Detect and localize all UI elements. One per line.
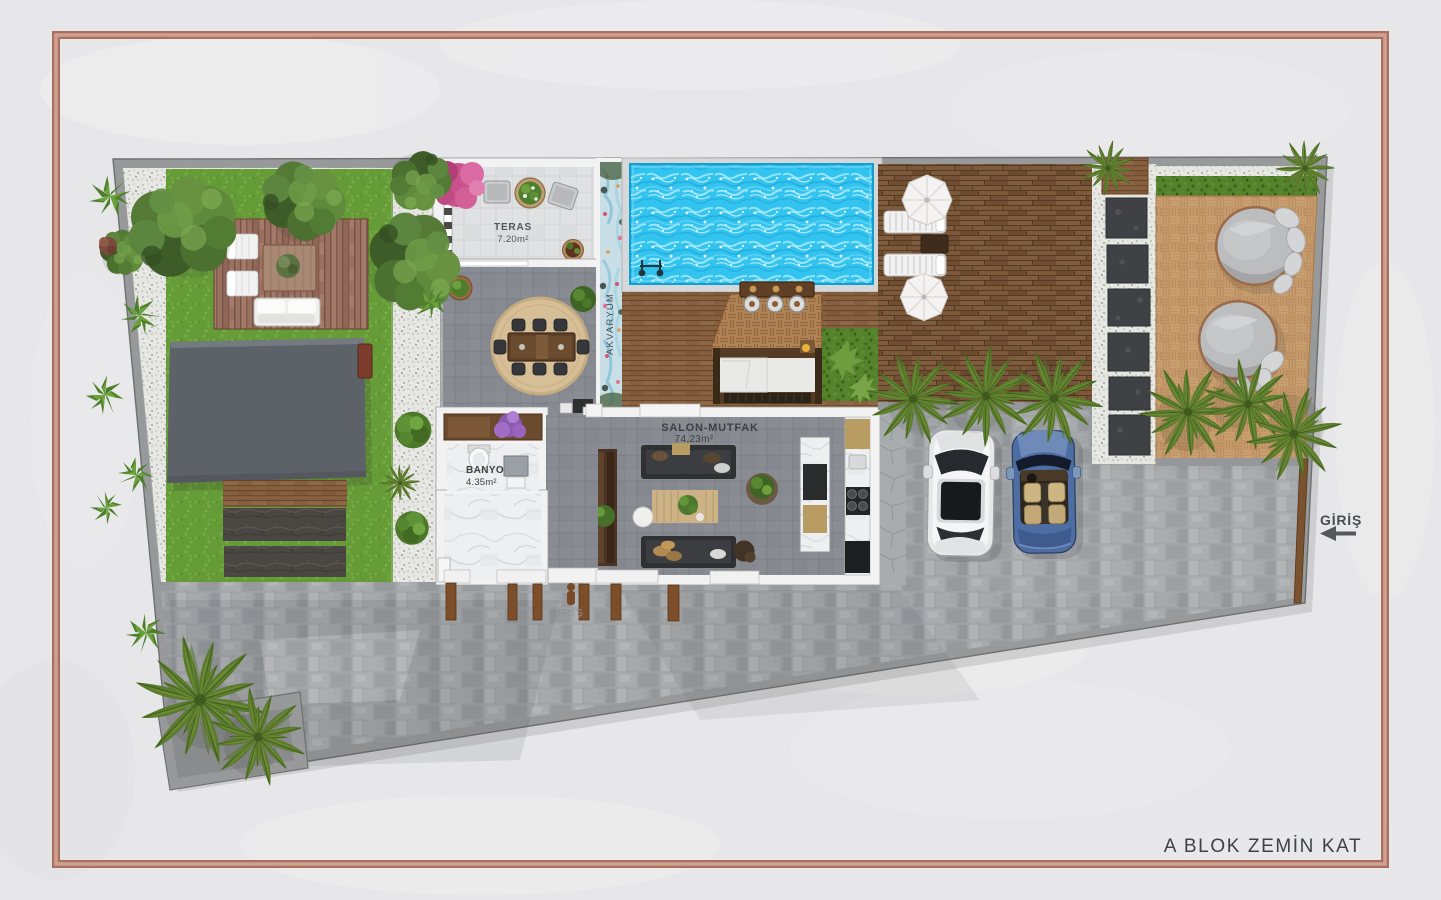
svg-text:SALON-MUTFAK: SALON-MUTFAK (661, 422, 759, 434)
svg-text:4.35m²: 4.35m² (466, 477, 497, 488)
svg-text:GİRİŞ: GİRİŞ (549, 606, 584, 619)
svg-text:GİRİŞ: GİRİŞ (1320, 512, 1362, 528)
svg-text:A BLOK ZEMİN KAT: A BLOK ZEMİN KAT (1164, 836, 1362, 857)
svg-text:BANYO: BANYO (466, 465, 504, 476)
svg-text:AKVARYUM: AKVARYUM (605, 293, 616, 355)
svg-text:74,23m²: 74,23m² (675, 434, 714, 445)
svg-text:7.20m²: 7.20m² (497, 234, 528, 245)
svg-text:TERAS: TERAS (494, 222, 532, 233)
